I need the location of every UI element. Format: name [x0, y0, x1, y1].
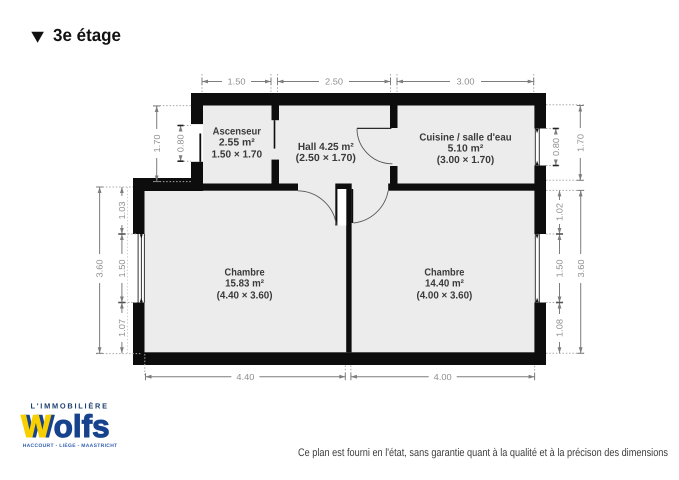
svg-text:0.80: 0.80 [551, 138, 561, 156]
svg-text:Ce plan est fourni en l'état,: Ce plan est fourni en l'état, sans garan… [298, 447, 668, 459]
svg-text:3.00: 3.00 [457, 77, 475, 87]
svg-text:2.55 m²: 2.55 m² [219, 138, 255, 149]
svg-text:1.50: 1.50 [555, 259, 565, 277]
svg-text:1.03: 1.03 [117, 201, 127, 219]
svg-text:(4.40 × 3.60): (4.40 × 3.60) [217, 291, 273, 302]
svg-text:3.60: 3.60 [95, 259, 105, 277]
svg-text:Cuisine / salle d'eau: Cuisine / salle d'eau [419, 133, 511, 144]
svg-text:(2.50 × 1.70): (2.50 × 1.70) [296, 153, 356, 164]
svg-text:Chambre: Chambre [424, 268, 464, 279]
svg-text:3e étage: 3e étage [53, 25, 121, 45]
svg-text:(4.00 × 3.60): (4.00 × 3.60) [416, 291, 472, 302]
svg-text:0.80: 0.80 [176, 134, 186, 152]
svg-text:Hall 4.25 m²: Hall 4.25 m² [298, 142, 354, 153]
svg-text:Ascenseur: Ascenseur [213, 126, 261, 137]
svg-text:1.07: 1.07 [117, 319, 127, 337]
svg-text:1.50: 1.50 [228, 77, 246, 87]
svg-text:Chambre: Chambre [225, 268, 265, 279]
svg-text:1.50 × 1.70: 1.50 × 1.70 [212, 149, 263, 160]
svg-text:1.02: 1.02 [555, 203, 565, 221]
svg-text:15.83 m²: 15.83 m² [225, 279, 264, 290]
svg-text:2.50: 2.50 [325, 77, 343, 87]
svg-text:HACCOURT - LIÈGE - MAASTRICHT: HACCOURT - LIÈGE - MAASTRICHT [23, 442, 118, 449]
svg-text:(3.00 × 1.70): (3.00 × 1.70) [437, 155, 495, 166]
svg-text:1.70: 1.70 [575, 134, 585, 152]
svg-text:3.60: 3.60 [576, 259, 586, 277]
svg-text:W: W [21, 408, 51, 444]
svg-text:1.70: 1.70 [152, 134, 162, 152]
svg-text:5.10 m²: 5.10 m² [448, 144, 484, 155]
svg-text:1.50: 1.50 [117, 259, 127, 277]
svg-text:4.00: 4.00 [434, 372, 452, 382]
svg-text:1.08: 1.08 [555, 319, 565, 337]
svg-text:14.40 m²: 14.40 m² [425, 279, 464, 290]
svg-text:4.40: 4.40 [236, 372, 254, 382]
